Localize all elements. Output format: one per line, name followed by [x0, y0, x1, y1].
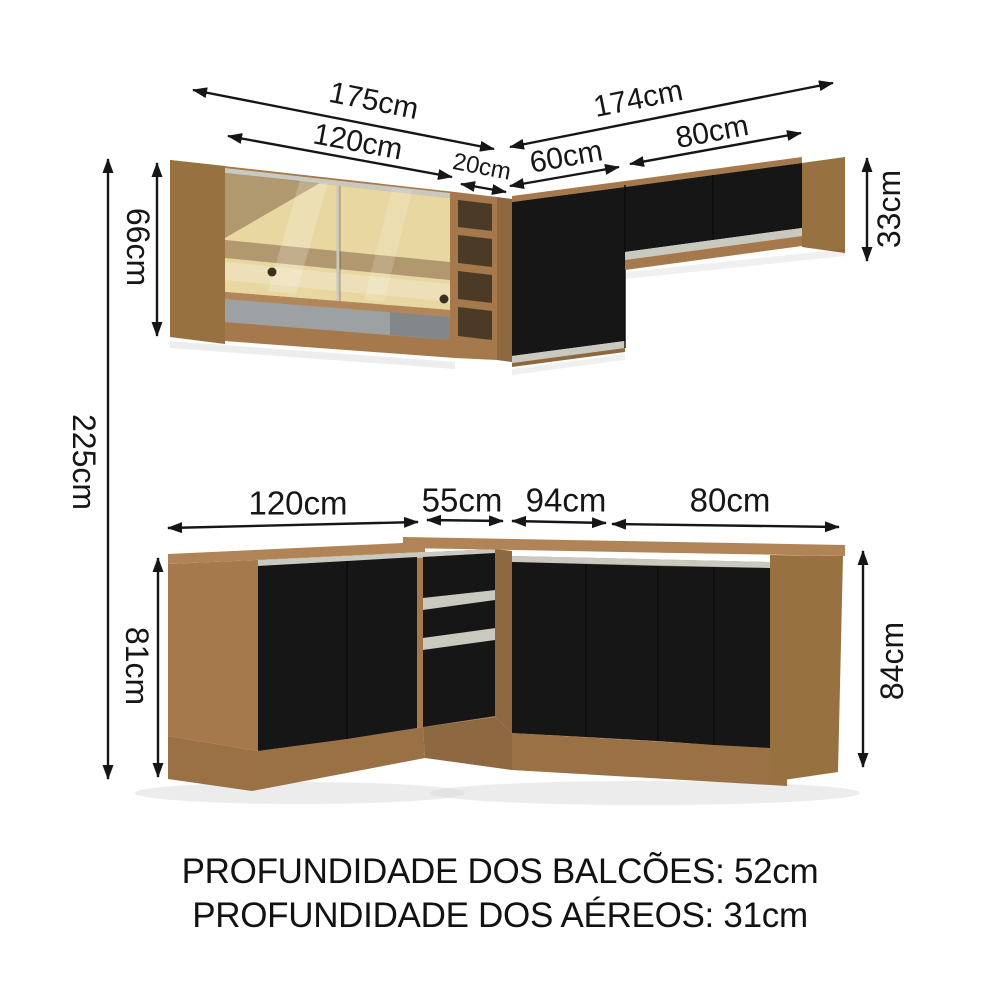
base-corner-post	[495, 549, 512, 733]
dim-label-upper-right-height: 33cm	[871, 170, 907, 248]
floor-shadow-left	[135, 782, 465, 804]
dim-label-upper-height: 66cm	[120, 208, 156, 286]
niche-opening-1	[458, 200, 492, 231]
dim-arrow-base-corner-cabinet	[512, 521, 606, 523]
base-right-door-2	[586, 564, 658, 741]
base-right-side-panel	[770, 555, 843, 782]
dim-label-total-height: 225cm	[66, 414, 102, 510]
dim-label-base-corner-cabinet: 94cm	[526, 482, 607, 519]
base-left-door-1	[258, 561, 347, 751]
niche-opening-4	[458, 307, 492, 340]
dim-label-upper-right-cabinet: 80cm	[673, 109, 751, 155]
base-right-door-4	[714, 567, 770, 748]
upper-right-cabinet-side-panel	[802, 157, 845, 253]
dim-arrow-base-left-cabinet	[168, 522, 418, 528]
upper-glass-cabinet-side-panel	[170, 160, 225, 344]
dim-label-base-right-height: 84cm	[874, 622, 910, 700]
depth-caption-wall-units: PROFUNDIDADE DOS AÉREOS: 31cm	[0, 894, 1000, 938]
depth-caption: PROFUNDIDADE DOS BALCÕES: 52cm PROFUNDID…	[0, 850, 1000, 938]
glass-door-knob-right	[440, 295, 449, 304]
dim-label-base-left-cabinet: 120cm	[248, 485, 347, 522]
dim-label-base-drawer-cabinet: 55cm	[422, 482, 503, 519]
dim-label-base-left-height: 81cm	[119, 627, 155, 705]
product-dimension-diagram: 175cm 120cm 20cm 174cm 60cm 80cm 66cm 22…	[0, 0, 1000, 1000]
niche-opening-2	[458, 235, 492, 267]
dim-arrow-base-right-cabinet	[612, 524, 839, 527]
upper-corner-cabinet-door	[512, 187, 625, 356]
base-left-door-2	[347, 557, 417, 739]
upper-corner-post	[497, 197, 512, 362]
floor-shadow-right	[430, 781, 860, 805]
depth-caption-counters: PROFUNDIDADE DOS BALCÕES: 52cm	[0, 850, 1000, 894]
dim-label-upper-right-total: 174cm	[591, 74, 686, 124]
dim-arrow-upper-niche	[461, 184, 506, 192]
dim-label-upper-niche: 20cm	[450, 148, 513, 186]
base-right-door-1	[512, 562, 586, 737]
dim-label-base-right-cabinet: 80cm	[690, 482, 771, 519]
dim-arrow-base-drawer-cabinet	[427, 520, 503, 521]
niche-opening-3	[458, 271, 492, 303]
glass-door-knob-left	[268, 268, 277, 277]
base-right-door-3	[658, 566, 714, 745]
base-drawer-door-bottom	[423, 640, 495, 727]
